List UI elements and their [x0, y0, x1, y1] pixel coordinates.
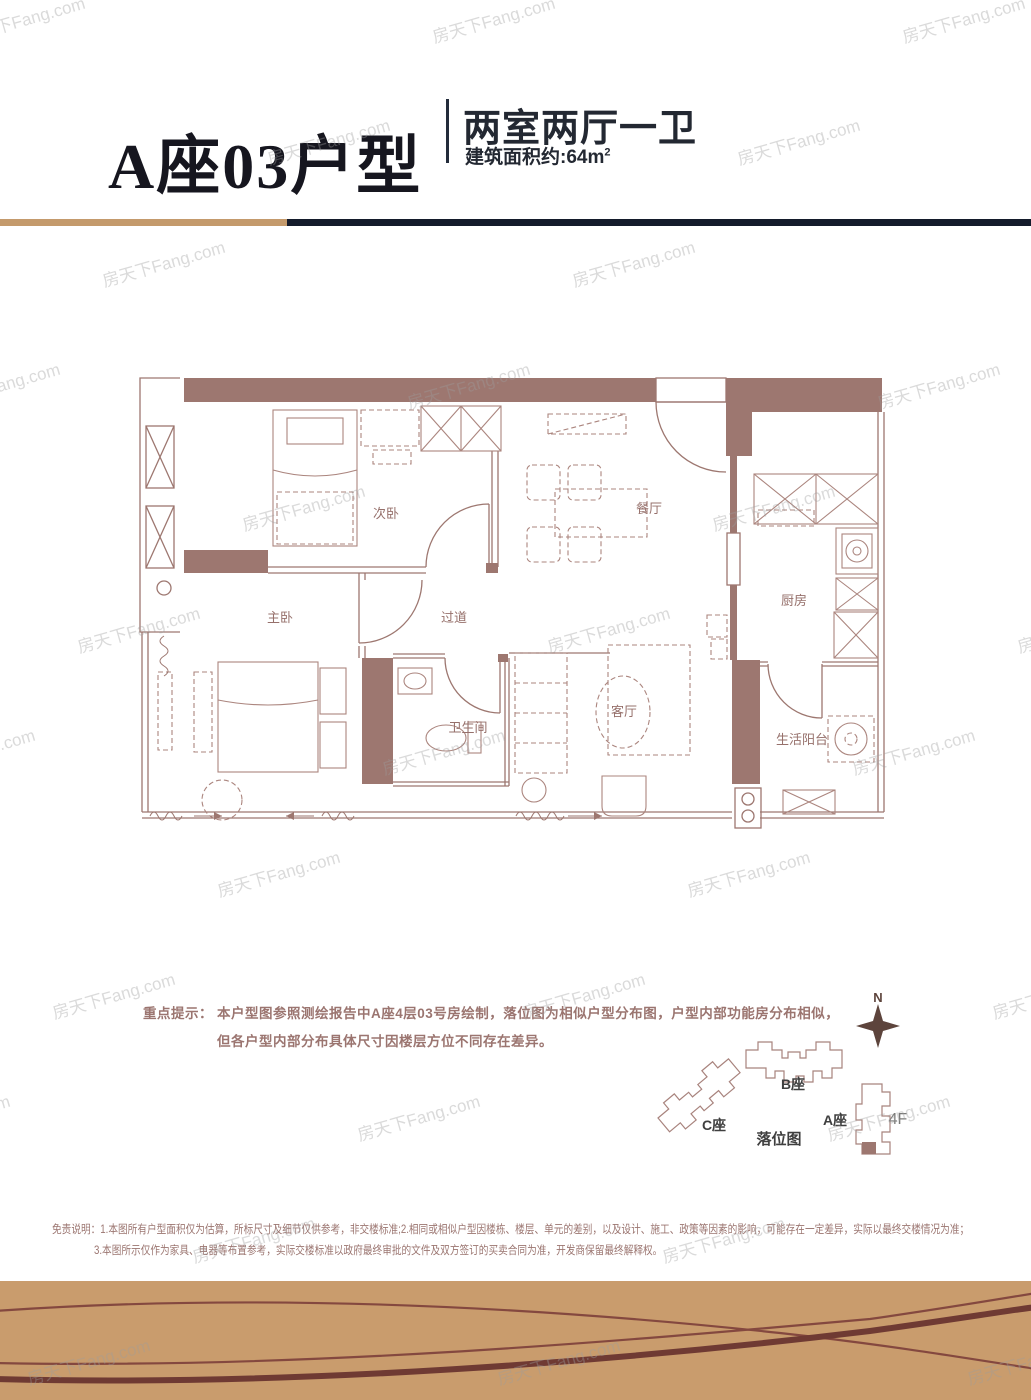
unit-area: 建筑面积约:64m2: [465, 142, 610, 169]
bathroom-fixtures: [398, 668, 481, 753]
unit-position-marker: [862, 1142, 876, 1154]
watermark-text: 房天下Fang.com: [99, 233, 228, 292]
watermark-text: 房天下Fang.com: [899, 0, 1028, 48]
room-label-living-room: 客厅: [611, 704, 637, 719]
building-b-label: B座: [781, 1076, 805, 1092]
floorplan-page: A座03户型 两室两厅一卫 建筑面积约:64m2: [0, 0, 1031, 1400]
header-rule-dark: [287, 219, 1031, 226]
unit-area-value: 建筑面积约:64m: [465, 147, 604, 168]
page-title: A座03户型: [108, 135, 422, 199]
watermark-text: 房天下Fang.com: [0, 0, 88, 48]
watermark-text: 房天下Fang.com: [214, 843, 343, 902]
watermark-text: 房天下Fang.com: [0, 1087, 13, 1146]
watermark-text: 房天下Fang.com: [734, 111, 863, 170]
watermark-text: 房天下Fang.com: [989, 965, 1031, 1024]
watermark-text: 房天下Fang.com: [1014, 599, 1031, 658]
disclaimer-line2: 3.本图所示仅作为家具、电器等布置参考，实际交楼标准以政府最终审批的文件及双方签…: [52, 1241, 969, 1262]
floor-plan: 次卧 餐厅 厨房 主卧 过道 卫生间 客厅 生活阳台: [134, 370, 894, 838]
watermark-text: 房天下Fang.com: [0, 721, 38, 780]
room-label-hallway: 过道: [441, 610, 467, 625]
disclaimer-line1: 免责说明：1.本图所有户型面积仅为估算，所标尺寸及细节仅供参考，非交楼标准;2.…: [52, 1220, 969, 1241]
key-notice-label: 重点提示：: [143, 1000, 213, 1056]
unit-area-sup: 2: [604, 147, 610, 159]
watermark-text: 房天下Fang.com: [569, 233, 698, 292]
north-compass-icon: [856, 1004, 900, 1048]
room-label-kitchen: 厨房: [781, 593, 807, 608]
sitemap-caption: 落位图: [756, 1130, 801, 1148]
building-c-label: C座: [702, 1117, 726, 1133]
room-label-bathroom: 卫生间: [448, 720, 487, 735]
header-rule-gold: [0, 219, 287, 226]
watermark-text: 房天下Fang.com: [354, 1087, 483, 1146]
decorative-band: [0, 1281, 1031, 1400]
master-bedroom-furniture: [158, 662, 346, 820]
dining-furniture: [527, 414, 727, 659]
wall-segments: [184, 378, 882, 784]
room-label-master-bedroom: 主卧: [267, 610, 293, 625]
watermark-text: 房天下Fang.com: [684, 843, 813, 902]
room-label-utility-balcony: 生活阳台: [776, 732, 828, 747]
watermark-text: 房天下Fang.com: [0, 355, 63, 414]
title-divider: [446, 99, 449, 163]
kitchen-furniture: [754, 474, 878, 658]
floor-label: 4F: [889, 1111, 908, 1128]
room-label-second-bedroom: 次卧: [373, 506, 399, 521]
structure-lines: [140, 378, 884, 828]
building-c-outline: [653, 1053, 745, 1138]
room-label-dining-room: 餐厅: [636, 501, 662, 516]
watermark-text: 房天下Fang.com: [429, 0, 558, 48]
second-bedroom-furniture: [273, 406, 501, 546]
site-location-map: N B座 C座 A座 4F 落位图: [630, 988, 960, 1178]
living-room-furniture: [515, 645, 690, 816]
north-label: N: [873, 990, 882, 1005]
building-a-label: A座: [823, 1112, 847, 1128]
disclaimer: 免责说明：1.本图所有户型面积仅为估算，所标尺寸及细节仅供参考，非交楼标准;2.…: [52, 1220, 1031, 1262]
balcony-fixtures: [783, 716, 874, 814]
